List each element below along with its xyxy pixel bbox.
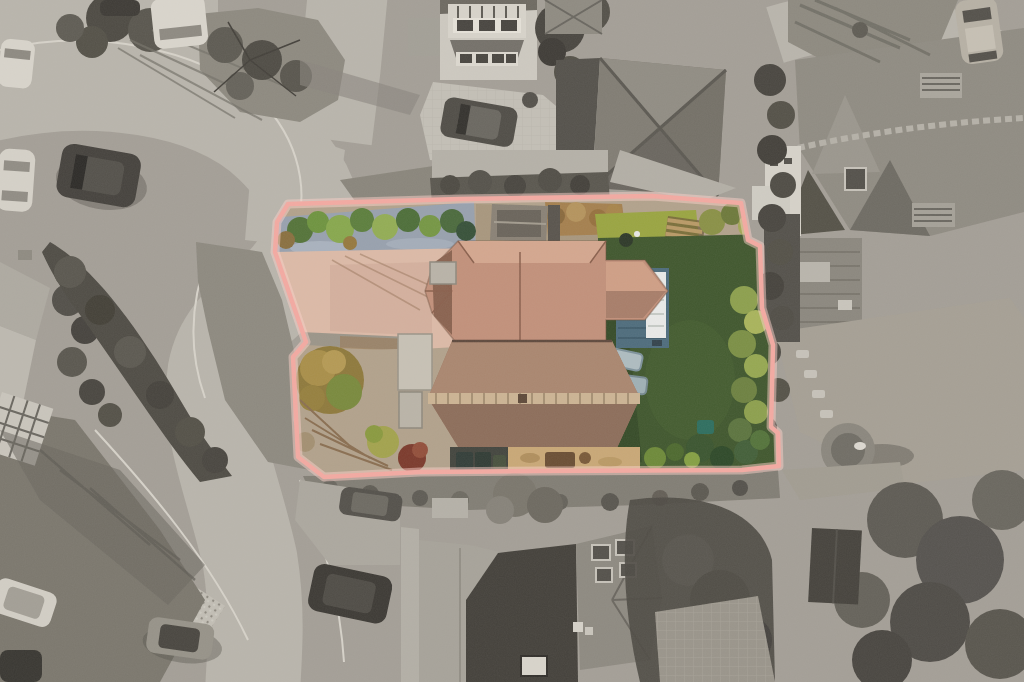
aerial-photo: [0, 0, 1024, 682]
photo-grain: [0, 0, 1024, 682]
